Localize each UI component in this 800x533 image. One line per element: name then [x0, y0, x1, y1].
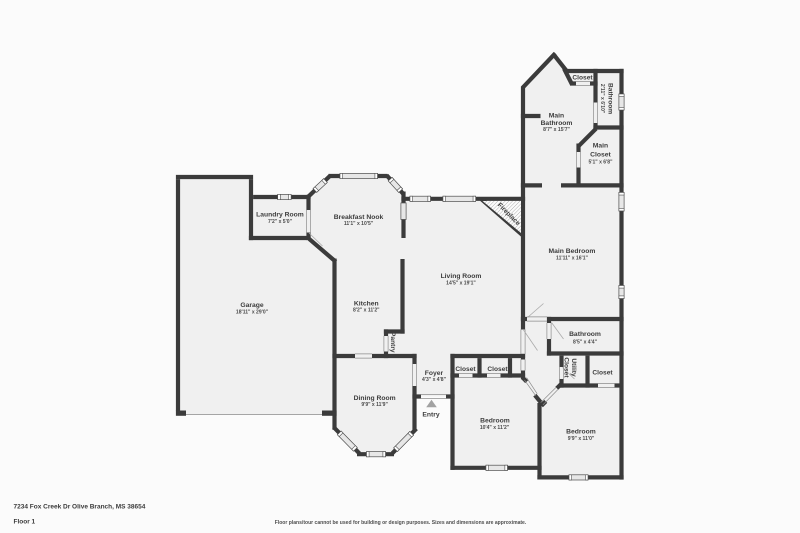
svg-text:8'2" x 11'2": 8'2" x 11'2": [353, 308, 380, 314]
svg-text:Bedroom: Bedroom: [480, 418, 510, 425]
svg-text:8'7" x 15'7": 8'7" x 15'7": [543, 127, 570, 133]
svg-text:Breakfast Nook: Breakfast Nook: [334, 214, 384, 221]
svg-text:Foyer: Foyer: [425, 370, 444, 377]
svg-text:Bathroom: Bathroom: [541, 120, 573, 127]
svg-text:Main: Main: [593, 143, 608, 150]
svg-text:9'9" x 11'0": 9'9" x 11'0": [568, 436, 595, 442]
svg-text:Closet: Closet: [590, 152, 611, 159]
svg-text:9'9" x 11'9": 9'9" x 11'9": [361, 402, 388, 408]
svg-text:7234 Fox Creek Dr Olive Branch: 7234 Fox Creek Dr Olive Branch, MS 38654: [14, 504, 146, 511]
svg-text:Dining Room: Dining Room: [354, 395, 396, 402]
svg-text:11'11" x 16'1": 11'11" x 16'1": [556, 256, 588, 262]
svg-text:Closet: Closet: [455, 366, 476, 373]
svg-text:Pantry: Pantry: [389, 332, 396, 353]
svg-text:Utility: Utility: [570, 358, 577, 377]
svg-text:4'3" x 4'8": 4'3" x 4'8": [422, 377, 447, 383]
svg-text:Main Bedroom: Main Bedroom: [549, 248, 596, 255]
svg-text:Living Room: Living Room: [441, 273, 482, 280]
svg-text:Closet: Closet: [572, 74, 593, 81]
svg-text:8'5" x 4'4": 8'5" x 4'4": [573, 339, 598, 345]
svg-text:Main: Main: [549, 113, 564, 120]
svg-text:11'1" x 10'5": 11'1" x 10'5": [344, 221, 374, 227]
svg-text:Kitchen: Kitchen: [354, 300, 379, 307]
svg-text:Closet: Closet: [487, 366, 508, 373]
svg-text:Bathroom: Bathroom: [607, 83, 614, 114]
svg-text:5'1" x 6'8": 5'1" x 6'8": [588, 159, 613, 165]
svg-text:18'11" x 29'0": 18'11" x 29'0": [236, 309, 269, 315]
svg-text:Closet: Closet: [592, 370, 613, 377]
svg-text:Laundry Room: Laundry Room: [256, 212, 304, 219]
svg-text:Closet: Closet: [563, 357, 570, 378]
svg-text:Floor 1: Floor 1: [14, 519, 36, 526]
svg-text:14'5" x 19'1": 14'5" x 19'1": [446, 280, 476, 286]
svg-text:Bedroom: Bedroom: [566, 429, 596, 436]
svg-text:2'11" x 6'10": 2'11" x 6'10": [599, 84, 605, 114]
svg-text:Garage: Garage: [240, 302, 264, 309]
svg-text:Entry: Entry: [422, 412, 440, 419]
svg-text:7'2" x 5'0": 7'2" x 5'0": [268, 219, 293, 225]
svg-text:Bathroom: Bathroom: [569, 331, 601, 338]
svg-text:10'4" x 11'2": 10'4" x 11'2": [480, 425, 510, 431]
svg-text:Floor plans/tour cannot be use: Floor plans/tour cannot be used for buil…: [275, 520, 527, 526]
